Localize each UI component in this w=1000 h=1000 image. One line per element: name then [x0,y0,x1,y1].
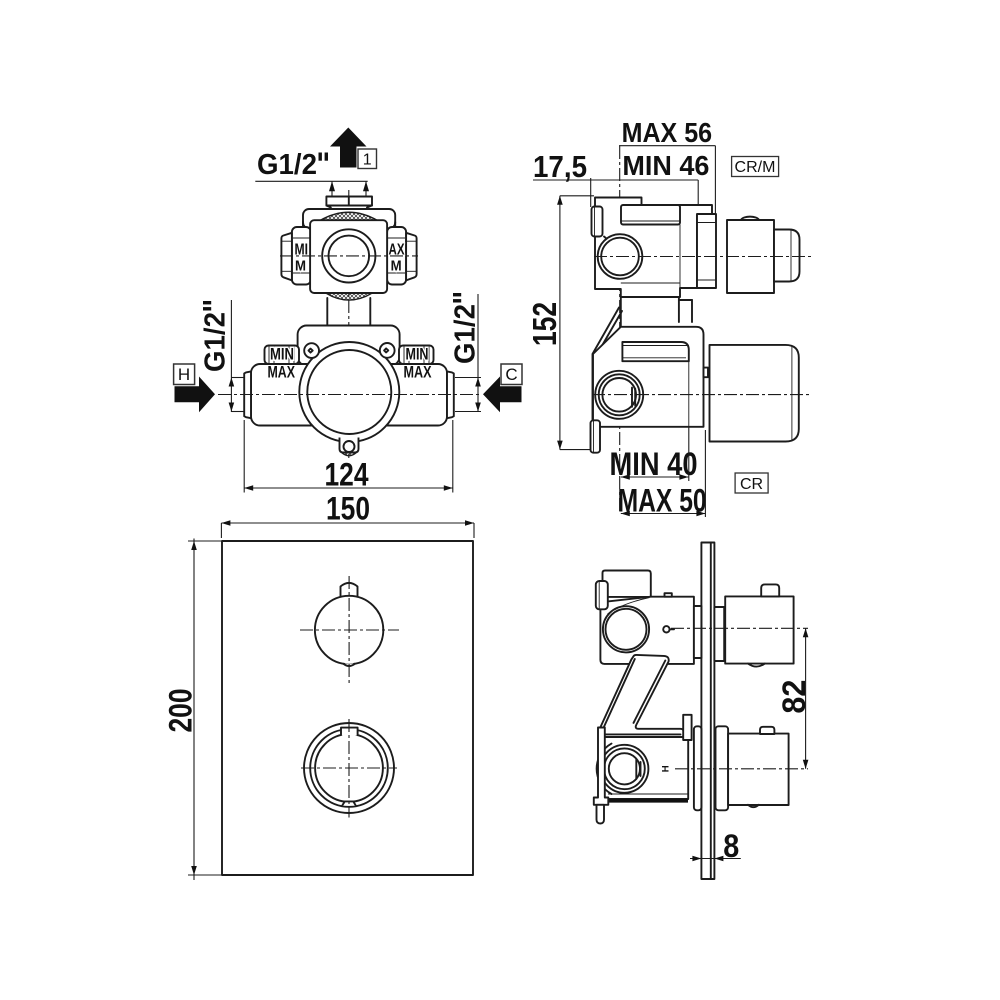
svg-text:150: 150 [326,491,370,527]
svg-text:MIN: MIN [406,345,429,364]
svg-text:M: M [295,258,306,275]
svg-text:MAX 56: MAX 56 [622,117,713,148]
svg-text:152: 152 [526,302,563,346]
svg-text:H: H [178,365,190,384]
svg-text:200: 200 [163,689,199,733]
svg-text:124: 124 [325,457,369,493]
svg-text:82: 82 [776,680,812,714]
svg-text:1: 1 [363,152,372,169]
svg-text:G1/2: G1/2 [200,312,232,372]
svg-text:MAX: MAX [404,362,432,381]
svg-text:MIN 46: MIN 46 [622,150,709,181]
svg-text:CR/M: CR/M [735,159,776,176]
svg-text:17,5: 17,5 [533,149,587,184]
svg-text:MAX: MAX [268,362,296,381]
svg-text:C: C [505,365,517,384]
svg-text:M: M [391,258,402,275]
svg-text:G1/2: G1/2 [257,149,317,181]
svg-text:H: H [661,765,672,772]
svg-text:MIN: MIN [270,345,294,364]
svg-text:CR: CR [740,476,763,493]
svg-text:G1/2: G1/2 [450,304,482,364]
